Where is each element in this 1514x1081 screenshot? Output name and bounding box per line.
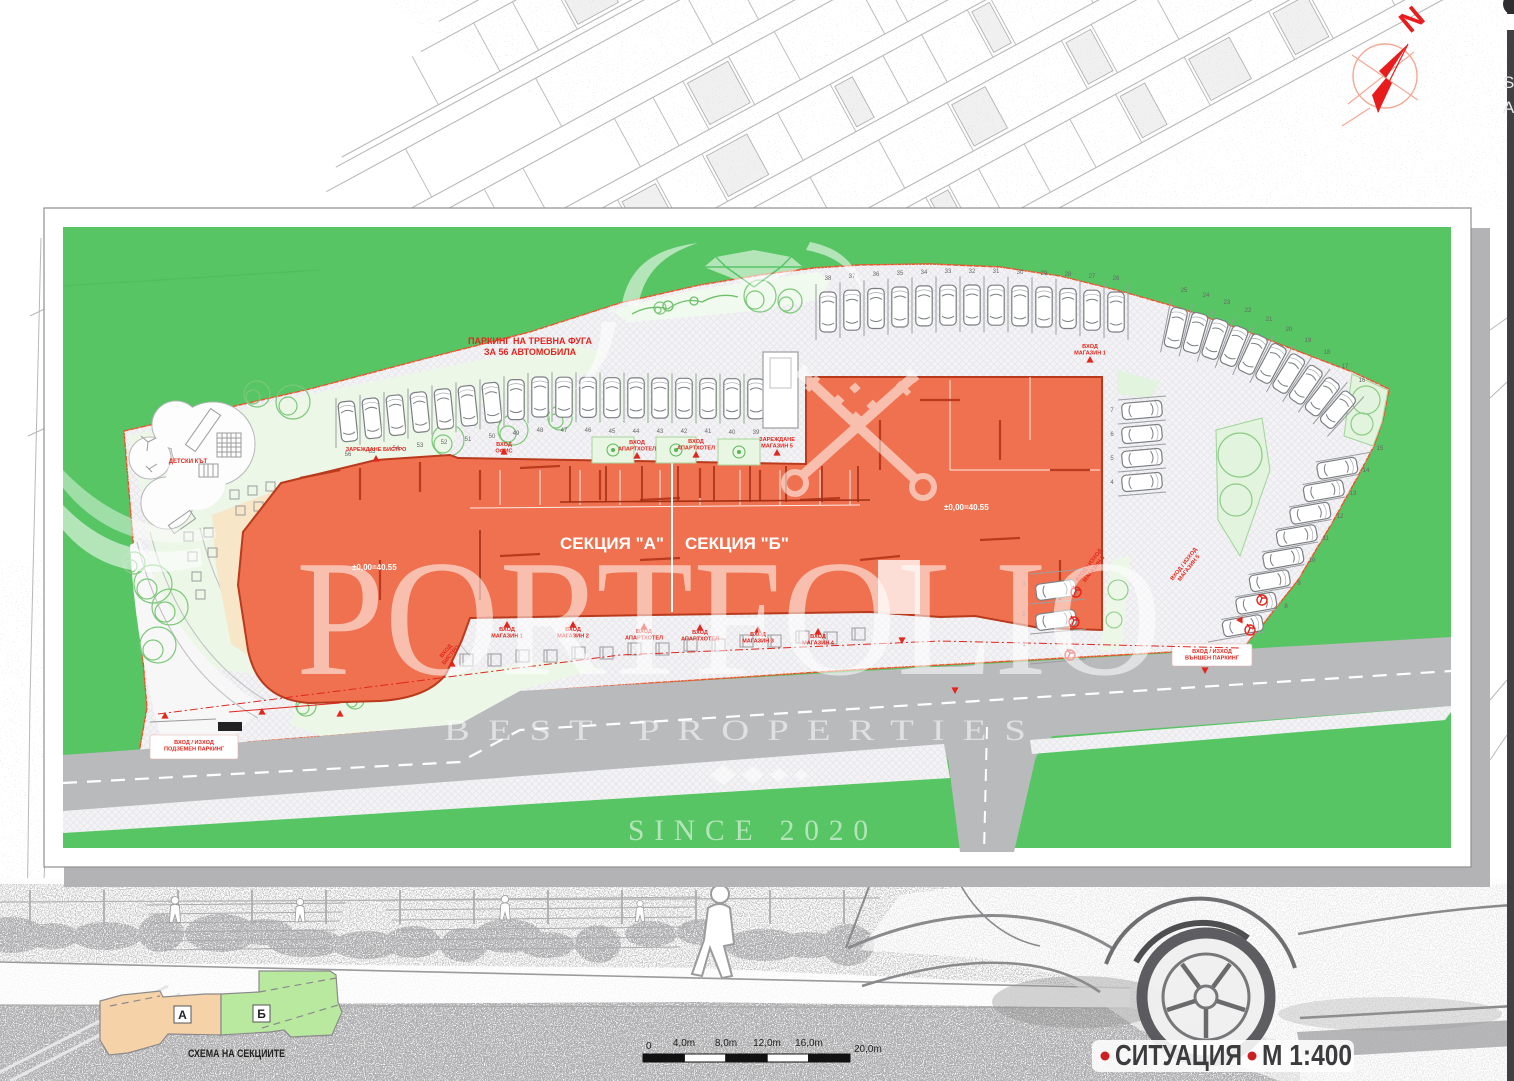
svg-text:43: 43 [657,429,664,435]
svg-text:ВХОД: ВХОД [688,439,704,445]
svg-text:4,0m: 4,0m [673,1038,695,1049]
svg-text:50: 50 [489,434,496,440]
svg-text:20: 20 [1286,327,1293,333]
svg-text:26: 26 [1113,276,1120,282]
svg-text:40: 40 [729,430,736,436]
svg-text:21: 21 [1266,317,1273,323]
svg-text:16: 16 [1359,378,1366,384]
svg-text:SINCE 2020: SINCE 2020 [628,814,878,847]
svg-text:53: 53 [417,443,424,449]
svg-text:ВХОД / ИЗХОД: ВХОД / ИЗХОД [1192,649,1232,655]
svg-text:ЗАРЕЖДАНЕ БИСТРО: ЗАРЕЖДАНЕ БИСТРО [346,447,407,453]
svg-text:СИТУАЦИЯ: СИТУАЦИЯ [1115,1040,1242,1072]
svg-text:35: 35 [897,271,904,277]
svg-text:48: 48 [537,428,544,434]
svg-text:ВХОД: ВХОД [629,440,645,446]
svg-text:47: 47 [561,428,568,434]
svg-text:ВХОД: ВХОД [496,442,512,448]
svg-text:12,0m: 12,0m [753,1038,781,1049]
svg-text:23: 23 [1224,300,1231,306]
svg-text:19: 19 [1305,338,1312,344]
svg-text:PORTFOLIO: PORTFOLIO [296,526,1162,710]
svg-text:ЗАРЕЖДАНЕ: ЗАРЕЖДАНЕ [759,437,795,443]
svg-text:20,0m: 20,0m [854,1044,882,1055]
svg-text:29: 29 [1041,271,1048,277]
svg-text:27: 27 [1089,274,1096,280]
svg-text:Б: Б [257,1007,266,1021]
svg-text:39: 39 [753,430,760,436]
svg-text:АПАРТХОТЕЛ: АПАРТХОТЕЛ [677,445,715,451]
svg-text:ПОДЗЕМЕН ПАРКИНГ: ПОДЗЕМЕН ПАРКИНГ [164,746,225,752]
svg-text:24: 24 [1203,293,1210,299]
svg-text:51: 51 [465,437,472,443]
svg-text:±0,00=40.55: ±0,00=40.55 [944,503,989,512]
svg-text:44: 44 [633,429,640,435]
svg-text:A: A [1503,98,1514,117]
svg-text:ВЪНШЕН ПАРКИНГ: ВЪНШЕН ПАРКИНГ [1185,655,1240,661]
svg-text:0: 0 [646,1041,652,1052]
svg-text:28: 28 [1065,272,1072,278]
svg-text:15: 15 [1377,446,1384,452]
svg-text:СХЕМА НА СЕКЦИИТЕ: СХЕМА НА СЕКЦИИТЕ [188,1048,285,1060]
svg-text:МАГАЗИН 1: МАГАЗИН 1 [1074,350,1106,356]
svg-text:52: 52 [441,440,448,446]
svg-text:17: 17 [1342,364,1349,370]
svg-text:25: 25 [1181,288,1188,294]
svg-text:ВХОД / ИЗХОД: ВХОД / ИЗХОД [174,740,214,746]
svg-text:ВХОД: ВХОД [1082,344,1098,350]
svg-text:ЗА 56 АВТОМОБИЛА: ЗА 56 АВТОМОБИЛА [484,347,577,357]
svg-text:ДЕТСКИ КЪТ: ДЕТСКИ КЪТ [169,459,208,465]
svg-text:49: 49 [513,431,520,437]
svg-text:36: 36 [873,272,880,278]
svg-text:30: 30 [1017,270,1024,276]
svg-text:13: 13 [1350,491,1357,497]
svg-text:33: 33 [945,269,952,275]
svg-text:11: 11 [1323,536,1330,542]
svg-text:42: 42 [681,429,688,435]
svg-text:8,0m: 8,0m [715,1038,737,1049]
svg-text:41: 41 [705,429,712,435]
svg-text:31: 31 [993,269,1000,275]
svg-text:34: 34 [921,270,928,276]
svg-text:14: 14 [1363,468,1370,474]
svg-text:S: S [1503,73,1514,92]
svg-text:МАГАЗИН 5: МАГАЗИН 5 [761,443,793,449]
svg-text:М 1:400: М 1:400 [1262,1040,1352,1072]
svg-text:46: 46 [585,428,592,434]
svg-text:45: 45 [609,429,616,435]
svg-text:ПАРКИНГ НА ТРЕВНА ФУГА: ПАРКИНГ НА ТРЕВНА ФУГА [468,336,593,346]
svg-text:22: 22 [1245,308,1252,314]
svg-text:12: 12 [1337,514,1344,520]
svg-text:BEST PROPERTIES: BEST PROPERTIES [444,714,1044,747]
svg-text:38: 38 [825,276,832,282]
svg-text:10: 10 [1309,558,1316,564]
svg-text:АПАРТХОТЕЛ: АПАРТХОТЕЛ [618,446,656,452]
svg-text:32: 32 [969,269,976,275]
svg-text:А: А [178,1008,187,1022]
svg-text:18: 18 [1324,350,1331,356]
svg-text:16,0m: 16,0m [795,1038,823,1049]
